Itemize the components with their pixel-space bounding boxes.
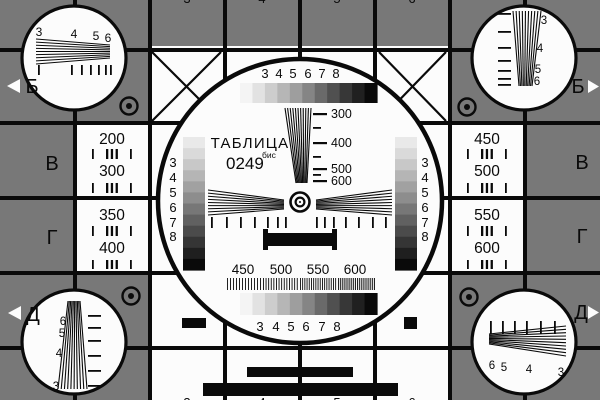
svg-text:5: 5 bbox=[333, 0, 340, 6]
svg-text:300: 300 bbox=[99, 163, 125, 180]
svg-text:3: 3 bbox=[183, 0, 190, 6]
svg-text:450: 450 bbox=[232, 262, 255, 277]
svg-text:В: В bbox=[45, 153, 58, 175]
svg-text:3: 3 bbox=[256, 319, 263, 334]
svg-text:350: 350 bbox=[99, 207, 125, 224]
svg-text:550: 550 bbox=[307, 262, 330, 277]
svg-text:7: 7 bbox=[169, 215, 176, 230]
svg-text:4: 4 bbox=[275, 66, 282, 81]
svg-text:5: 5 bbox=[59, 328, 65, 340]
black-square-row-d-right bbox=[404, 317, 417, 329]
svg-text:4: 4 bbox=[421, 170, 428, 185]
svg-text:4: 4 bbox=[272, 319, 279, 334]
svg-text:6: 6 bbox=[304, 66, 311, 81]
svg-text:7: 7 bbox=[318, 66, 325, 81]
svg-text:5: 5 bbox=[169, 185, 176, 200]
svg-text:6: 6 bbox=[489, 360, 495, 372]
svg-text:6: 6 bbox=[302, 319, 309, 334]
svg-text:6: 6 bbox=[105, 31, 112, 45]
svg-text:600: 600 bbox=[474, 240, 500, 257]
card-code: 0249 bbox=[226, 154, 264, 173]
svg-text:Б: Б bbox=[571, 76, 584, 98]
svg-text:6: 6 bbox=[169, 200, 176, 215]
svg-text:Г: Г bbox=[47, 227, 58, 249]
svg-text:200: 200 bbox=[99, 131, 125, 148]
grayscale-strip-right-labels: 3 4 5 6 7 8 bbox=[421, 155, 428, 244]
svg-text:Б: Б bbox=[25, 76, 38, 98]
svg-text:5: 5 bbox=[93, 29, 100, 43]
grayscale-strip-top bbox=[240, 83, 378, 103]
black-bar-bottom-short bbox=[247, 367, 353, 377]
svg-text:4: 4 bbox=[258, 395, 265, 400]
svg-text:300: 300 bbox=[331, 107, 352, 121]
svg-text:5: 5 bbox=[421, 185, 428, 200]
card-code-suffix: бис bbox=[262, 150, 277, 160]
svg-text:8: 8 bbox=[332, 66, 339, 81]
svg-text:8: 8 bbox=[333, 319, 340, 334]
svg-text:600: 600 bbox=[331, 174, 352, 188]
svg-text:550: 550 bbox=[474, 207, 500, 224]
svg-text:4: 4 bbox=[537, 43, 544, 55]
svg-text:7: 7 bbox=[318, 319, 325, 334]
svg-text:450: 450 bbox=[474, 131, 500, 148]
grayscale-strip-bottom bbox=[240, 293, 378, 315]
svg-text:6: 6 bbox=[421, 200, 428, 215]
svg-text:Д: Д bbox=[574, 302, 588, 324]
svg-text:7: 7 bbox=[421, 215, 428, 230]
svg-text:3: 3 bbox=[541, 15, 547, 27]
svg-text:6: 6 bbox=[534, 76, 540, 88]
svg-text:5: 5 bbox=[535, 64, 541, 76]
black-bar-row-d-left bbox=[182, 318, 206, 328]
svg-text:5: 5 bbox=[289, 66, 296, 81]
svg-text:5: 5 bbox=[501, 362, 507, 374]
grayscale-strip-left-labels: 3 4 5 6 7 8 bbox=[169, 155, 176, 244]
svg-text:8: 8 bbox=[421, 229, 428, 244]
svg-text:5: 5 bbox=[287, 319, 294, 334]
svg-text:3: 3 bbox=[53, 381, 59, 393]
svg-text:4: 4 bbox=[56, 348, 63, 360]
central-wedge-labels: 300 400 500 600 bbox=[331, 107, 352, 188]
svg-text:3: 3 bbox=[169, 155, 176, 170]
svg-text:6: 6 bbox=[60, 316, 66, 328]
svg-text:4: 4 bbox=[71, 27, 78, 41]
svg-text:3: 3 bbox=[421, 155, 428, 170]
grayscale-strip-left bbox=[183, 137, 205, 271]
svg-text:4: 4 bbox=[526, 364, 533, 376]
svg-text:В: В bbox=[575, 152, 588, 174]
svg-text:4: 4 bbox=[258, 0, 265, 6]
black-bar-bottom-long bbox=[203, 383, 398, 396]
svg-text:400: 400 bbox=[99, 240, 125, 257]
svg-text:500: 500 bbox=[270, 262, 293, 277]
svg-text:3: 3 bbox=[183, 395, 190, 400]
svg-text:5: 5 bbox=[333, 395, 340, 400]
svg-text:3: 3 bbox=[261, 66, 268, 81]
svg-text:4: 4 bbox=[169, 170, 176, 185]
svg-text:6: 6 bbox=[408, 0, 415, 6]
svg-text:400: 400 bbox=[331, 136, 352, 150]
grayscale-strip-right bbox=[395, 137, 417, 271]
svg-text:3: 3 bbox=[36, 25, 43, 39]
test-card-canvas: 3 4 5 6 7 8 ТАБЛИЦА 0249 бис 300 400 500… bbox=[0, 0, 600, 400]
svg-text:Г: Г bbox=[577, 226, 588, 248]
svg-text:8: 8 bbox=[169, 229, 176, 244]
tv-test-card: 3 4 5 6 7 8 ТАБЛИЦА 0249 бис 300 400 500… bbox=[0, 0, 600, 400]
card-title: ТАБЛИЦА bbox=[211, 135, 290, 152]
svg-text:500: 500 bbox=[474, 163, 500, 180]
svg-text:3: 3 bbox=[558, 367, 564, 379]
svg-text:6: 6 bbox=[408, 395, 415, 400]
svg-text:Д: Д bbox=[26, 304, 40, 326]
svg-text:600: 600 bbox=[344, 262, 367, 277]
corner-circle-top-right bbox=[472, 6, 576, 110]
